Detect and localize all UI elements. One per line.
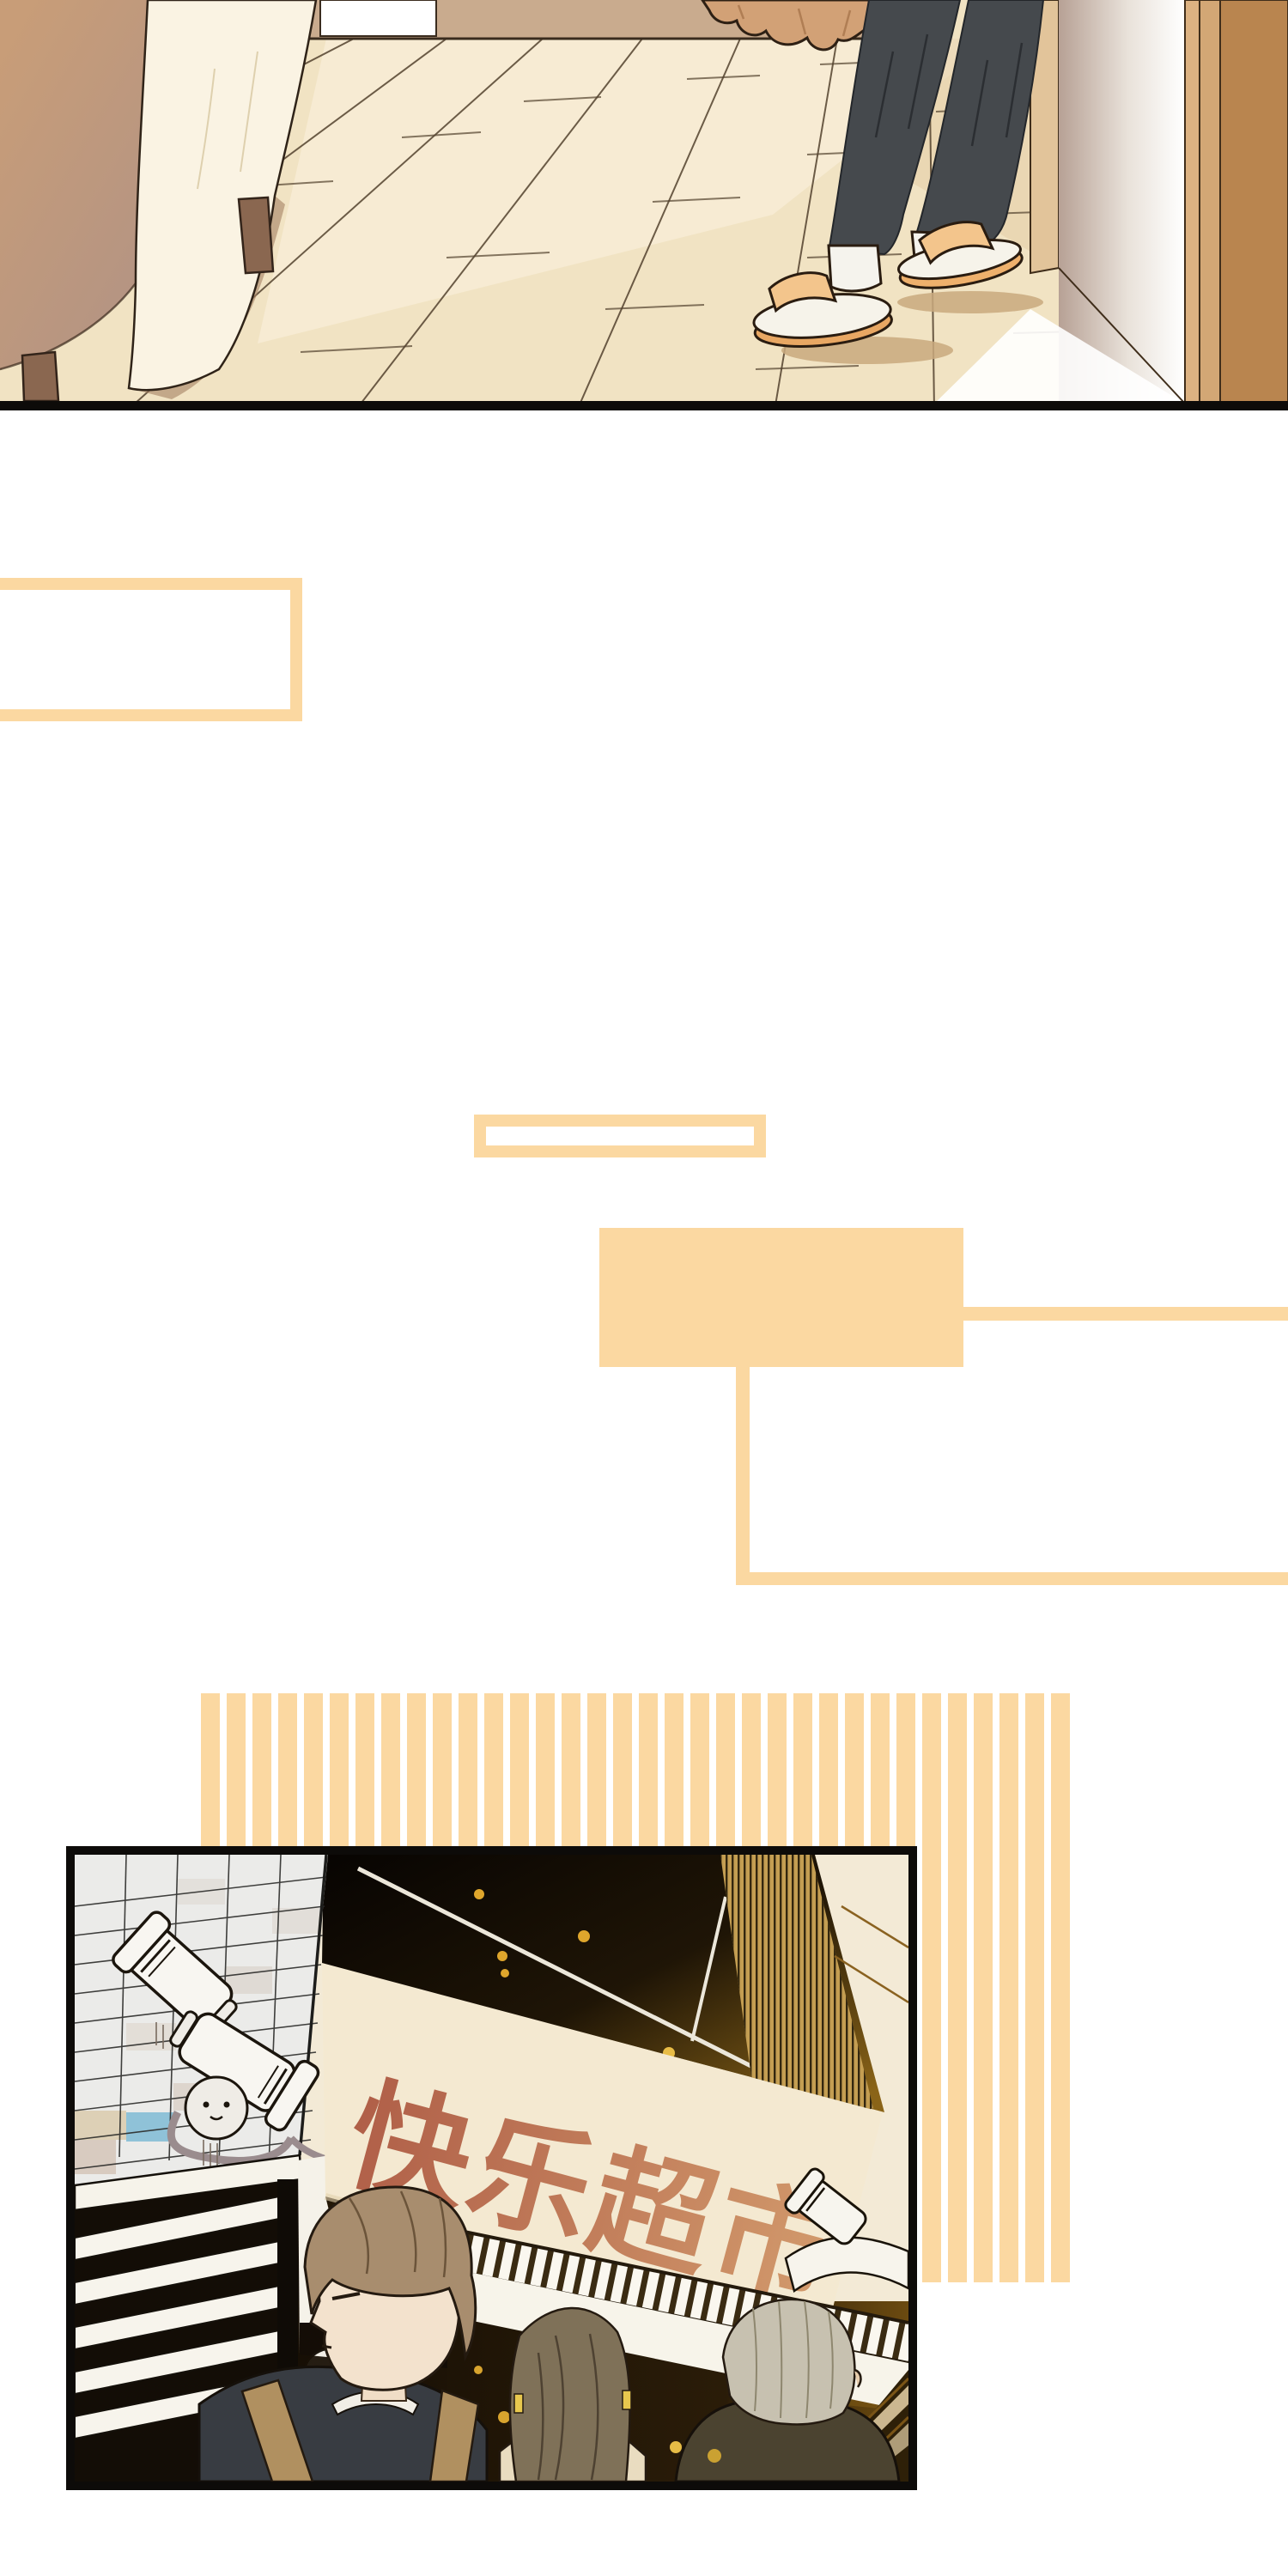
deco-line-vertical (736, 1367, 750, 1585)
top-panel-bedroom (0, 0, 1288, 410)
woman-hair (510, 2308, 630, 2482)
elder-hair (723, 2300, 854, 2425)
foot-shadow (897, 291, 1043, 313)
deco-outline-bar-center (474, 1115, 766, 1157)
bottom-panel-supermarket: 快乐超市 (66, 1846, 917, 2490)
sock-left (829, 246, 881, 291)
deco-line-horizontal-2 (736, 1572, 1288, 1585)
earring (514, 2394, 523, 2413)
panel-border (0, 401, 1288, 410)
doorway-white (320, 0, 436, 36)
mouth (322, 2346, 331, 2348)
bed-leg (239, 197, 273, 273)
comic-page: 快乐超市 (0, 0, 1288, 2576)
deco-line-horizontal-1 (963, 1307, 1288, 1321)
earring (623, 2391, 631, 2409)
deco-outline-rect-left (0, 578, 302, 721)
gold-dot (708, 2449, 721, 2463)
bed-leg (22, 352, 58, 401)
deco-filled-rect (599, 1228, 963, 1367)
